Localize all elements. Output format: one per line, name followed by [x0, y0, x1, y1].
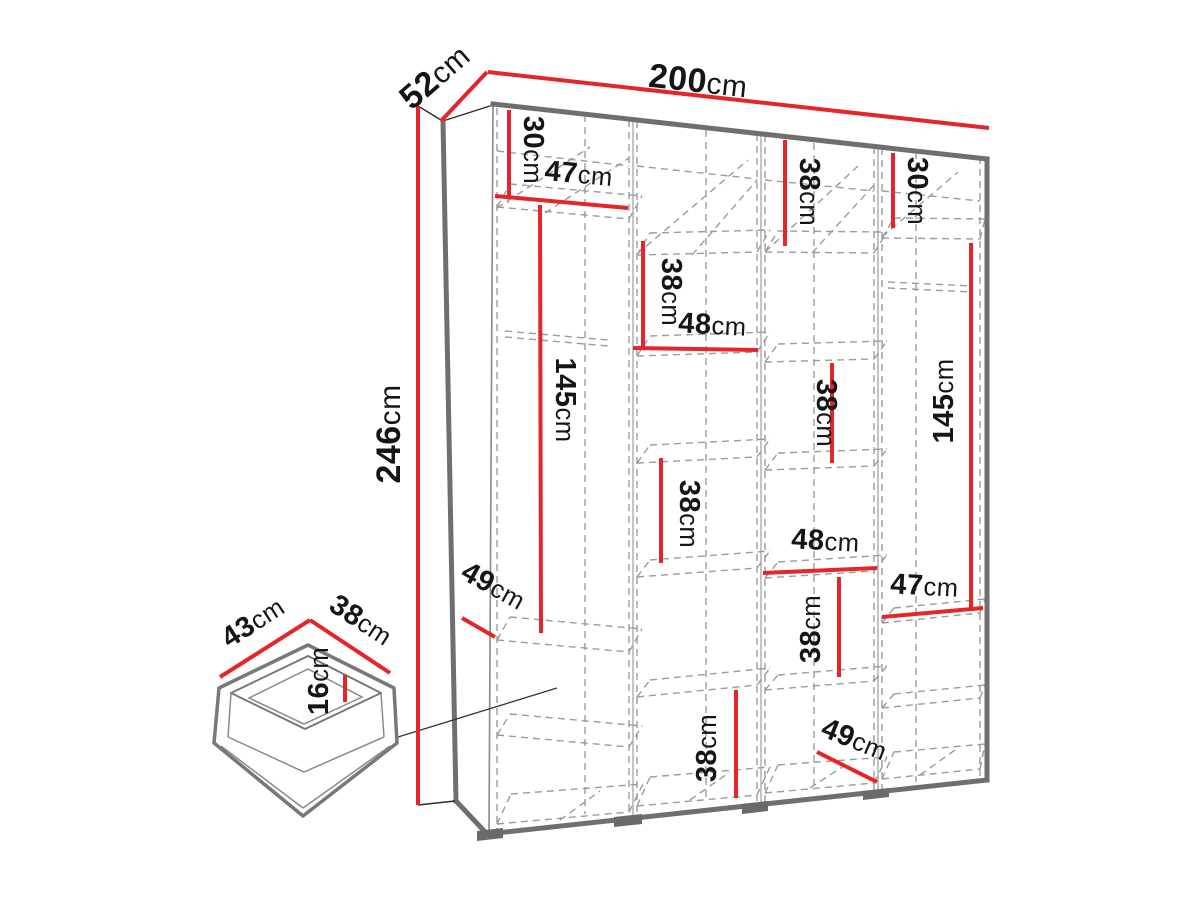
label-overall-depth: 52cm [392, 36, 477, 117]
dim-line-col1-hanging [540, 205, 541, 633]
drawer-pointer-line [398, 688, 557, 737]
furniture-dimension-diagram: 200cm 52cm 246cm 30cm 47cm 145cm 49cm 38… [0, 0, 1200, 900]
label-col2-mid-gap: 38cm [673, 480, 705, 548]
label-col1-width: 47cm [543, 155, 614, 193]
label-col1-depth: 49cm [456, 556, 531, 617]
label-col2-bottom-gap: 38cm [691, 714, 723, 782]
label-col4-top: 30cm [901, 157, 933, 225]
label-col3-upper-gap: 38cm [810, 379, 842, 447]
label-col2-width: 48cm [678, 307, 748, 343]
label-col3-lower-gap: 38cm [795, 595, 827, 663]
dim-line-col4-width [882, 608, 983, 617]
label-col4-hanging: 145cm [928, 359, 960, 444]
label-drawer-width: 43cm [216, 590, 291, 654]
label-drawer-depth: 38cm [324, 588, 399, 652]
dim-line-col3-width [763, 568, 877, 573]
dim-line-col1-width [495, 196, 628, 208]
wardrobe-diagram-canvas: 200cm 52cm 246cm 30cm 47cm 145cm 49cm 38… [0, 0, 1200, 900]
label-col1-hanging: 145cm [549, 358, 581, 443]
label-col4-width: 47cm [890, 568, 960, 604]
label-drawer-height: 16cm [303, 647, 335, 715]
label-col3-width: 48cm [791, 523, 861, 559]
label-col3-top-gap: 38cm [793, 158, 825, 226]
dim-line-col2-width [633, 348, 758, 350]
label-overall-height: 246cm [370, 384, 408, 483]
